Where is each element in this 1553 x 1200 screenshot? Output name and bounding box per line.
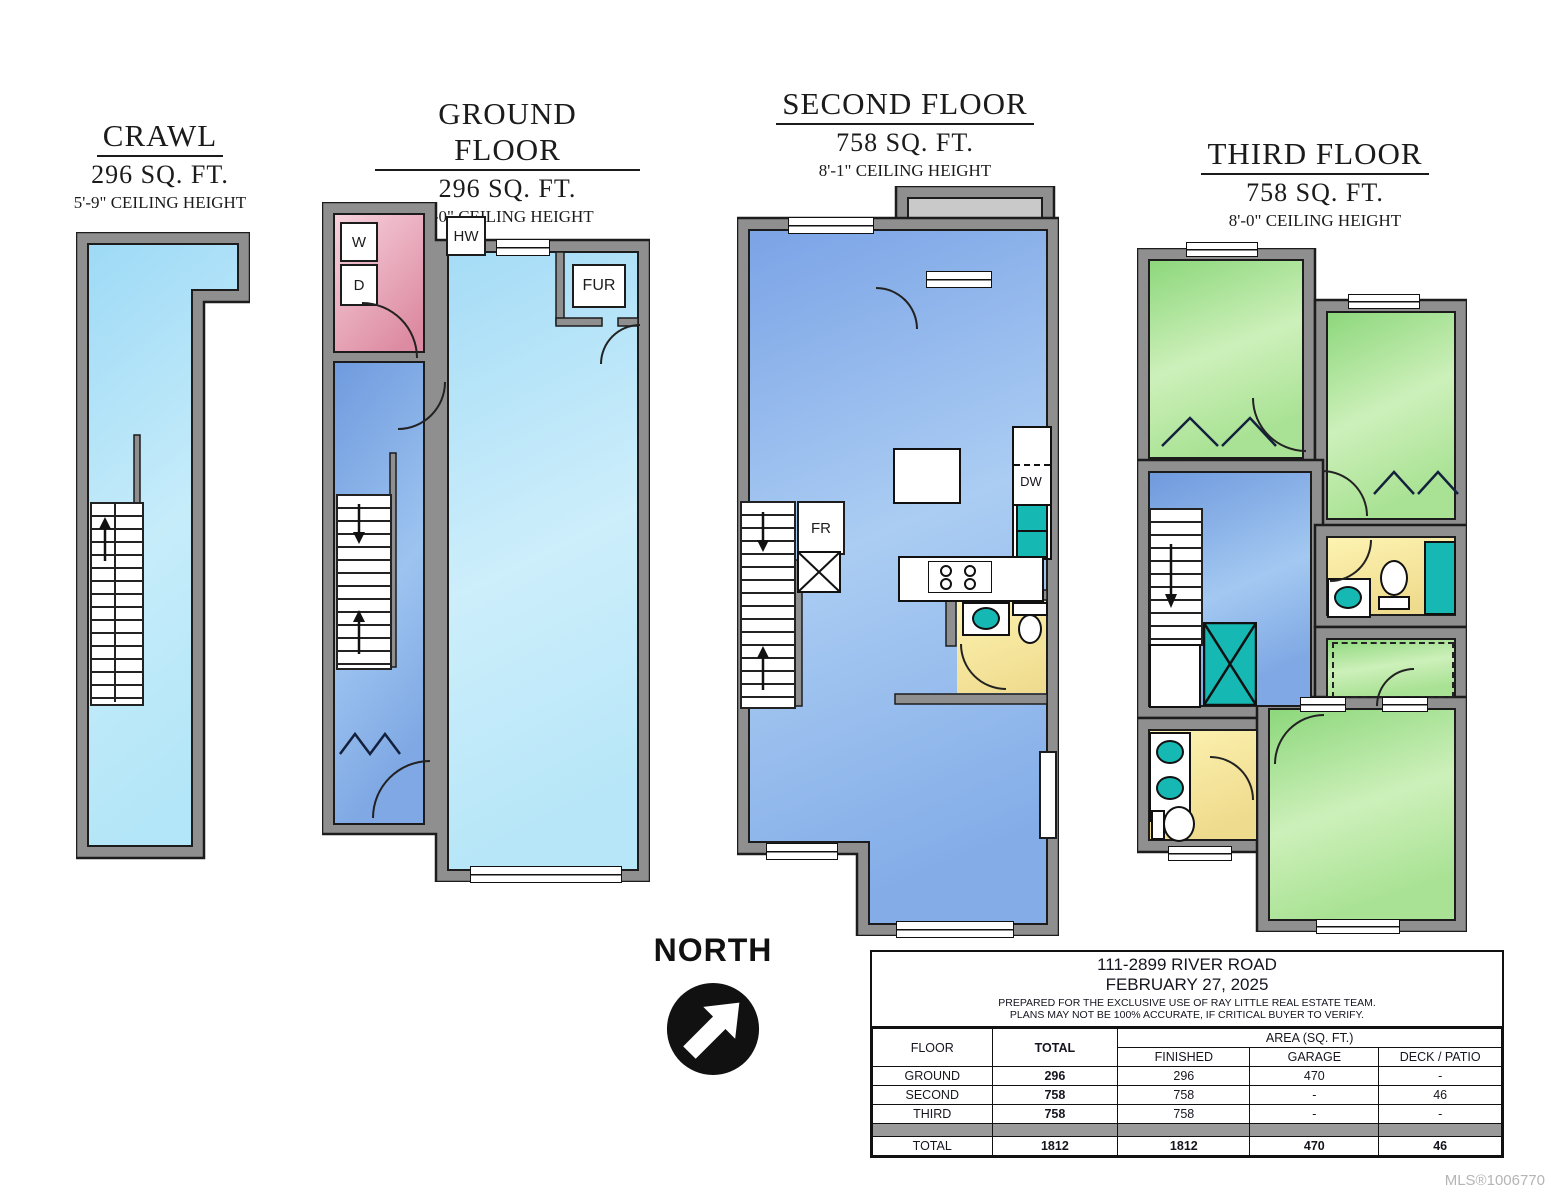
col-header-deck: DECK / PATIO	[1379, 1048, 1502, 1067]
garage-window	[496, 239, 550, 256]
kitchen-sink	[1016, 530, 1048, 558]
cell-total: 758	[992, 1105, 1118, 1124]
cell-garage: 470	[1250, 1137, 1379, 1156]
cell-total: 296	[992, 1067, 1118, 1086]
stair-up-arrow-icon	[98, 515, 112, 565]
toilet-bowl	[1018, 614, 1042, 644]
bifold-closet-door-icon	[338, 730, 402, 756]
stair-down-arrow-icon	[756, 508, 770, 554]
second-ceiling: 8'-1" CEILING HEIGHT	[755, 161, 1055, 181]
third-title-block: THIRD FLOOR 758 SQ. FT. 8'-0" CEILING HE…	[1175, 136, 1455, 231]
primary-window	[1300, 697, 1346, 712]
furnace-label: FUR	[583, 277, 616, 295]
toilet-bowl	[1163, 806, 1195, 842]
cell-total: 758	[992, 1086, 1118, 1105]
kitchen-sink	[1016, 504, 1048, 532]
crawl-stairs-divider	[114, 502, 116, 702]
area-summary-table: 111-2899 RIVER ROAD FEBRUARY 27, 2025 PR…	[870, 950, 1504, 1158]
north-label: NORTH	[648, 932, 778, 969]
toilet-bowl	[1380, 560, 1408, 596]
stair-up-arrow-icon	[756, 644, 770, 694]
cell-deck: -	[1379, 1067, 1502, 1086]
cell-finished: 296	[1118, 1067, 1250, 1086]
cell-garage: -	[1250, 1086, 1379, 1105]
spacer-cell	[873, 1124, 993, 1137]
crawl-ceiling: 5'-9" CEILING HEIGHT	[30, 193, 290, 213]
ground-area: 296 SQ. FT.	[375, 174, 640, 204]
ensuite-sink	[1156, 776, 1184, 800]
disclaimer-note: PLANS MAY NOT BE 100% ACCURATE, IF CRITI…	[872, 1009, 1502, 1021]
cell-garage: -	[1250, 1105, 1379, 1124]
cell-floor: TOTAL	[873, 1137, 993, 1156]
dryer-label: D	[354, 277, 365, 294]
deck-sliding-door	[926, 271, 992, 288]
cell-finished: 1812	[1118, 1137, 1250, 1156]
prepared-for-note: PREPARED FOR THE EXCLUSIVE USE OF RAY LI…	[872, 997, 1502, 1009]
crawl-title-block: CRAWL 296 SQ. FT. 5'-9" CEILING HEIGHT	[30, 118, 290, 213]
cell-floor: THIRD	[873, 1105, 993, 1124]
second-title: SECOND FLOOR	[776, 86, 1033, 125]
ground-title: GROUND FLOOR	[375, 96, 640, 171]
kitchen-stove-counter	[898, 556, 1044, 602]
crawl-area: 296 SQ. FT.	[30, 160, 290, 190]
spacer-cell	[1118, 1124, 1250, 1137]
col-header-finished: FINISHED	[1118, 1048, 1250, 1067]
cell-floor: SECOND	[873, 1086, 993, 1105]
garage-door	[470, 866, 622, 883]
col-header-total: TOTAL	[992, 1029, 1118, 1067]
office-window	[788, 217, 874, 234]
table-spacer-row	[873, 1124, 1502, 1137]
second-window	[766, 843, 838, 860]
washer-label: W	[352, 234, 366, 251]
half-bath-sink	[972, 607, 1000, 630]
table-header: 111-2899 RIVER ROAD FEBRUARY 27, 2025 PR…	[872, 952, 1502, 1028]
closet-door-zigzag-icon	[1372, 466, 1460, 496]
mls-number: MLS®1006770	[1385, 1172, 1545, 1189]
north-arrow-icon	[664, 980, 762, 1078]
counter-divider	[1014, 464, 1050, 466]
cell-deck: 46	[1379, 1086, 1502, 1105]
dryer-box: D	[340, 264, 378, 306]
table-row-total: TOTAL 1812 1812 470 46	[873, 1137, 1502, 1156]
cell-finished: 758	[1118, 1105, 1250, 1124]
hot-water-tank-box: HW	[446, 216, 486, 256]
bedroom2-window	[1348, 294, 1420, 309]
cell-deck: -	[1379, 1105, 1502, 1124]
cell-total: 1812	[992, 1137, 1118, 1156]
table-row-second: SECOND 758 758 - 46	[873, 1086, 1502, 1105]
living-room-window	[896, 921, 1014, 938]
cell-garage: 470	[1250, 1067, 1379, 1086]
floor-plan-sheet: CRAWL 296 SQ. FT. 5'-9" CEILING HEIGHT C…	[0, 0, 1553, 1200]
dishwasher-label: DW	[1016, 474, 1046, 490]
kitchen-island	[893, 448, 961, 504]
furnace-box: FUR	[572, 264, 626, 308]
table-row-ground: GROUND 296 296 470 -	[873, 1067, 1502, 1086]
toilet-base	[1378, 596, 1410, 610]
skylight-x-box-icon	[1203, 622, 1257, 706]
stair-down-arrow-icon	[352, 500, 366, 546]
crawl-title: CRAWL	[97, 118, 223, 157]
spacer-cell	[1250, 1124, 1379, 1137]
col-header-floor: FLOOR	[873, 1029, 993, 1067]
second-title-block: SECOND FLOOR 758 SQ. FT. 8'-1" CEILING H…	[755, 86, 1055, 181]
property-address: 111-2899 RIVER ROAD	[872, 955, 1502, 975]
cell-floor: GROUND	[873, 1067, 993, 1086]
third-title: THIRD FLOOR	[1201, 136, 1428, 175]
bathtub	[1424, 541, 1456, 615]
bath-sink	[1334, 586, 1362, 609]
stair-down-arrow-icon	[1164, 540, 1178, 610]
hot-water-label: HW	[454, 228, 479, 245]
spacer-cell	[992, 1124, 1118, 1137]
primary-window	[1382, 697, 1428, 712]
washer-box: W	[340, 222, 378, 262]
under-stair-storage	[1149, 644, 1201, 708]
fridge-label: FR	[811, 520, 831, 537]
third-ceiling: 8'-0" CEILING HEIGHT	[1175, 211, 1455, 231]
stair-up-arrow-icon	[352, 608, 366, 658]
third-area: 758 SQ. FT.	[1175, 178, 1455, 208]
cell-finished: 758	[1118, 1086, 1250, 1105]
primary-bottom-window	[1316, 919, 1400, 934]
table-row-third: THIRD 758 758 - -	[873, 1105, 1502, 1124]
col-header-area: AREA (SQ. FT.)	[1118, 1029, 1502, 1048]
spacer-cell	[1379, 1124, 1502, 1137]
plan-date: FEBRUARY 27, 2025	[872, 975, 1502, 995]
col-header-garage: GARAGE	[1250, 1048, 1379, 1067]
ensuite-window	[1168, 846, 1232, 861]
pantry-x-box-icon	[797, 551, 841, 593]
fridge-box: FR	[797, 501, 845, 555]
cell-deck: 46	[1379, 1137, 1502, 1156]
stove-burners-icon	[928, 561, 992, 593]
bedroom1-window	[1186, 242, 1258, 257]
ensuite-sink	[1156, 740, 1184, 764]
second-area: 758 SQ. FT.	[755, 128, 1055, 158]
